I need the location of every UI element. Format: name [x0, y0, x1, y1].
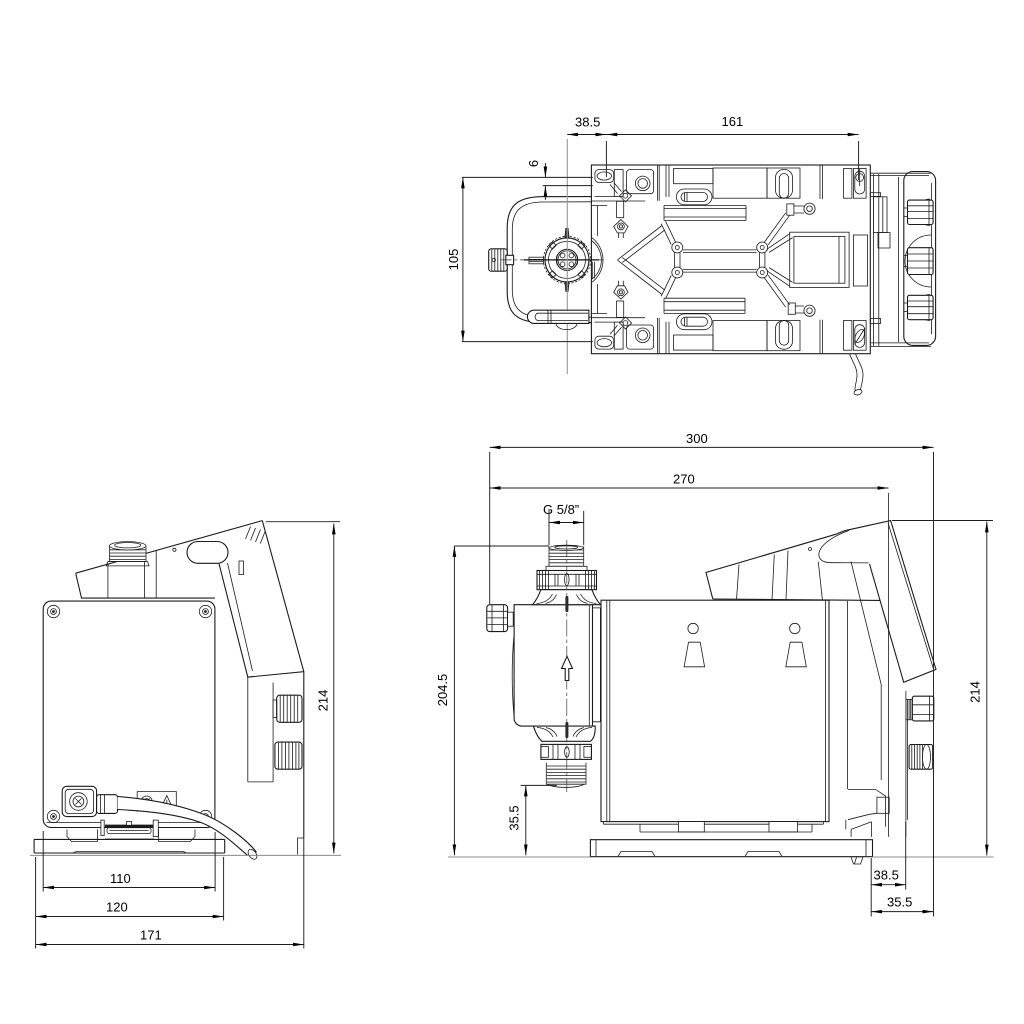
svg-text:105: 105	[446, 249, 461, 271]
svg-text:35.5: 35.5	[887, 895, 912, 910]
svg-text:214: 214	[968, 681, 983, 703]
svg-text:G 5/8”: G 5/8”	[543, 502, 579, 517]
svg-text:120: 120	[106, 900, 128, 915]
svg-text:110: 110	[110, 871, 131, 886]
svg-text:161: 161	[722, 114, 744, 129]
svg-text:300: 300	[686, 431, 708, 446]
svg-text:214: 214	[316, 690, 331, 712]
svg-text:6: 6	[526, 160, 541, 167]
svg-text:38.5: 38.5	[575, 115, 600, 130]
svg-text:38.5: 38.5	[874, 868, 899, 883]
svg-text:35.5: 35.5	[507, 805, 522, 830]
svg-text:204.5: 204.5	[435, 674, 450, 707]
svg-text:171: 171	[140, 928, 162, 943]
svg-text:270: 270	[673, 472, 695, 487]
